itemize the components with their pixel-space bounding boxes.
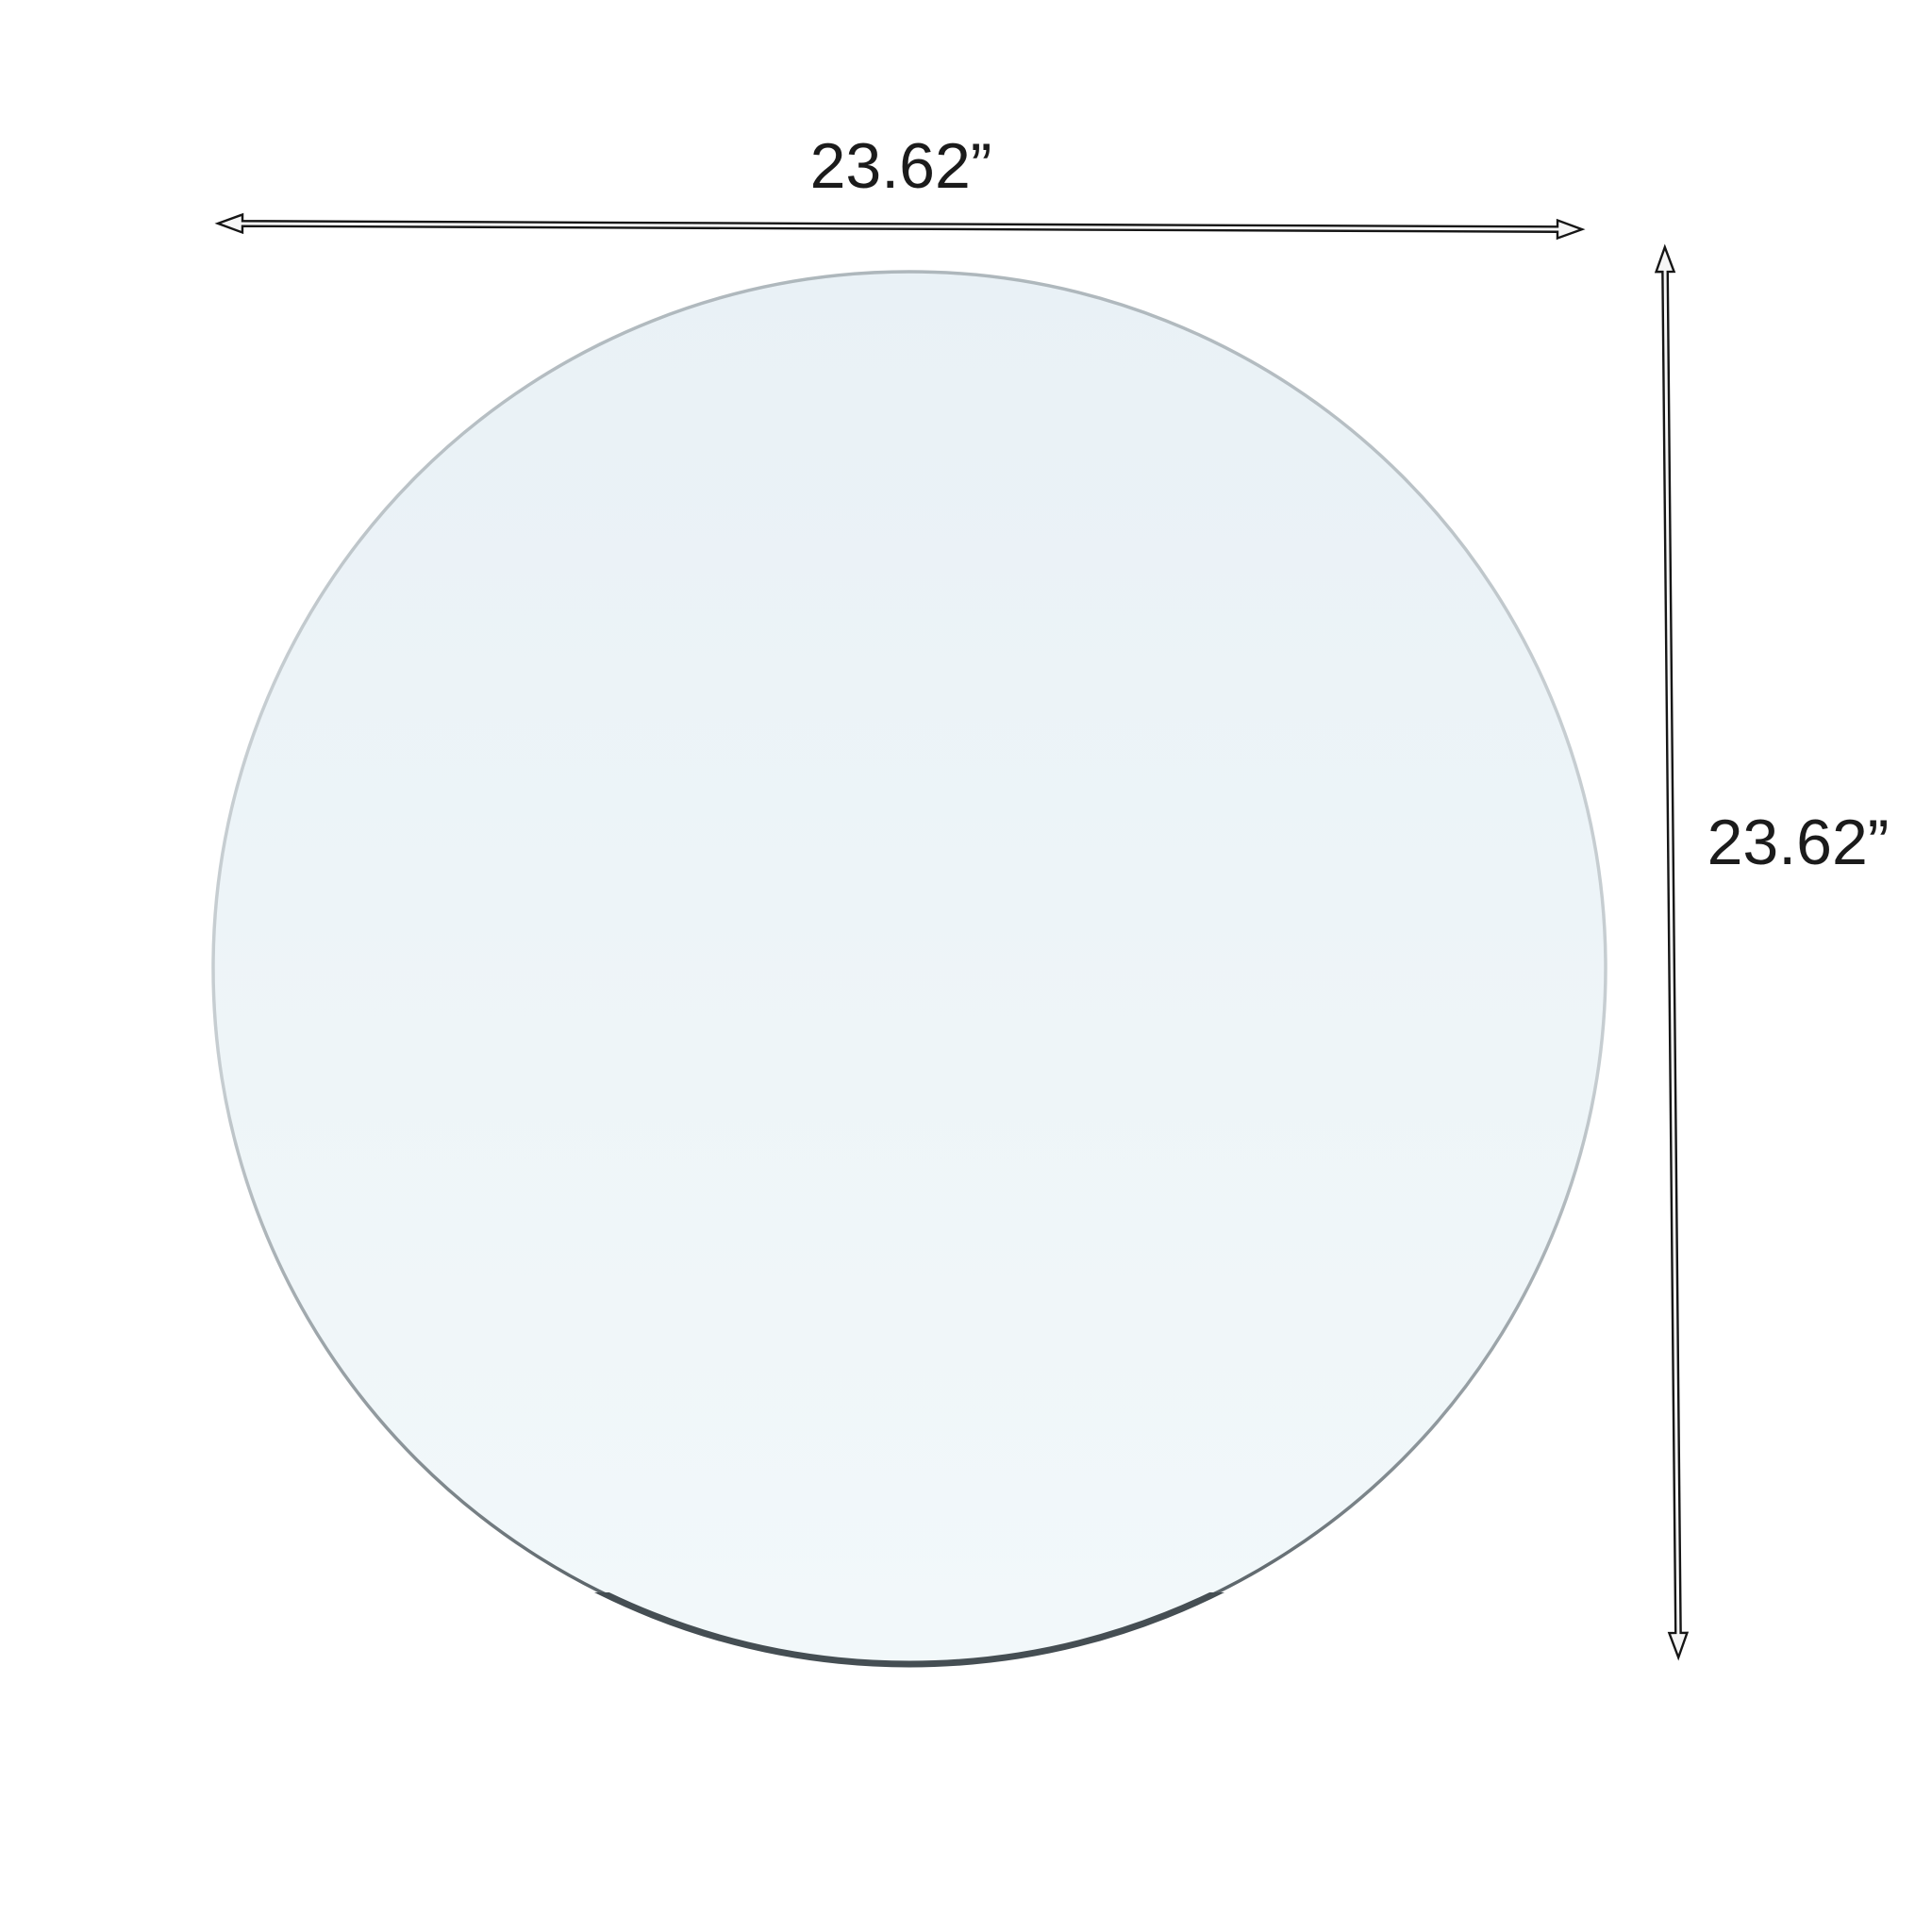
dimension-diagram-svg: 23.62” 23.62” xyxy=(0,0,1932,1932)
glass-round-top xyxy=(213,272,1606,1664)
height-dimension-arrow xyxy=(1656,247,1687,1657)
height-dimension-label: 23.62” xyxy=(1707,807,1890,878)
width-dimension-arrow xyxy=(218,214,1582,238)
product-dimension-diagram: 23.62” 23.62” xyxy=(0,0,1932,1932)
width-dimension-label: 23.62” xyxy=(810,130,992,202)
